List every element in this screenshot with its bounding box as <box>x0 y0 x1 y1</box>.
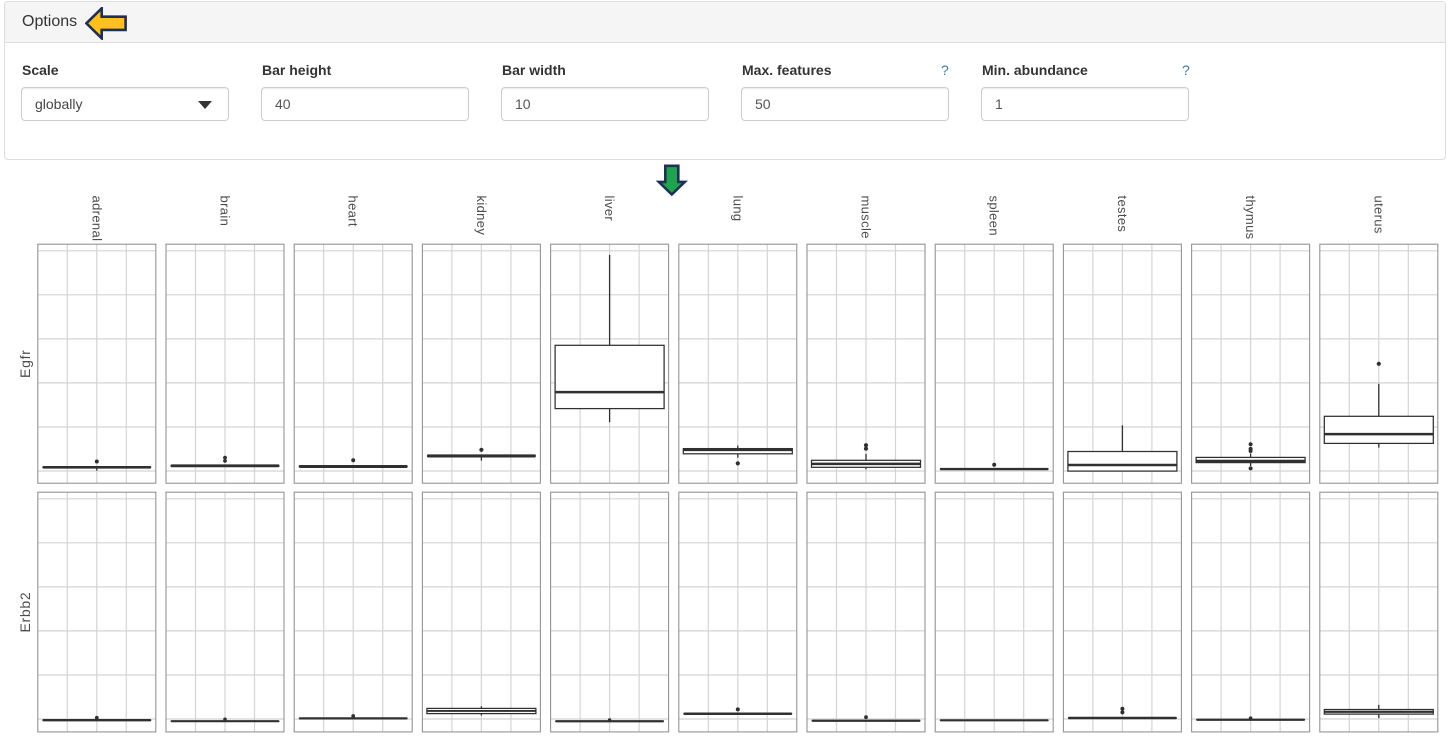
svg-text:testes: testes <box>1115 196 1130 233</box>
svg-text:adrenal: adrenal <box>89 196 104 242</box>
svg-text:lung: lung <box>730 196 745 222</box>
svg-text:muscle: muscle <box>859 196 874 239</box>
svg-text:Egfr: Egfr <box>17 349 33 377</box>
svg-text:uterus: uterus <box>1371 196 1386 234</box>
svg-text:brain: brain <box>218 196 233 227</box>
svg-text:heart: heart <box>346 196 361 227</box>
svg-text:Erbb2: Erbb2 <box>17 592 33 633</box>
svg-text:spleen: spleen <box>987 196 1002 236</box>
svg-text:thymus: thymus <box>1243 196 1258 240</box>
svg-text:kidney: kidney <box>474 196 489 236</box>
svg-text:liver: liver <box>602 196 617 222</box>
